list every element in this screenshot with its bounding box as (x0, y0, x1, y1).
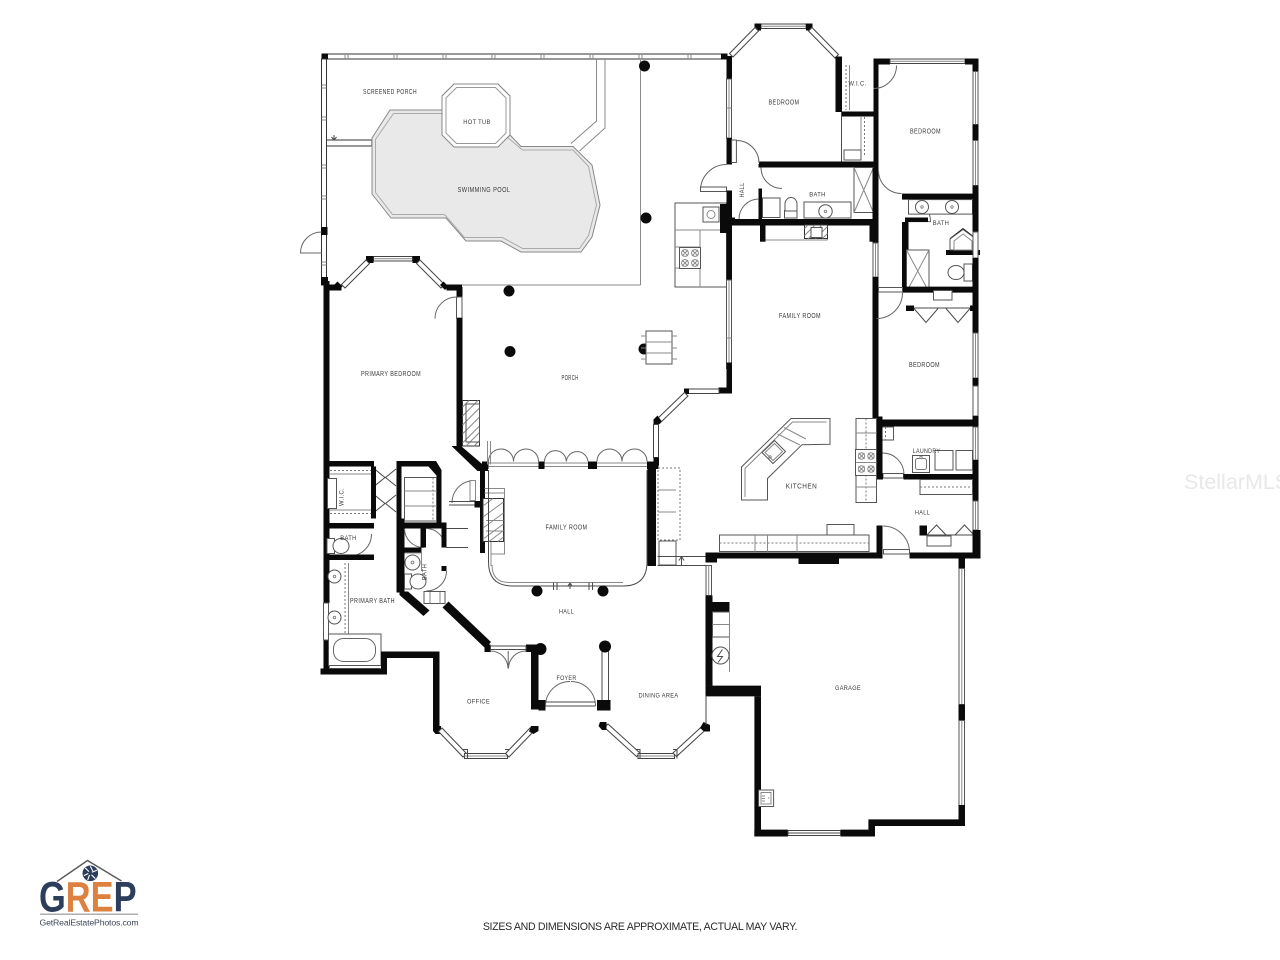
svg-text:BEDROOM: BEDROOM (769, 98, 800, 107)
svg-text:FAMILY ROOM: FAMILY ROOM (779, 311, 821, 320)
svg-text:LAUNDRY: LAUNDRY (913, 448, 941, 455)
svg-text:BATH: BATH (340, 535, 357, 542)
svg-text:HALL: HALL (739, 183, 746, 198)
svg-text:W.I.C.: W.I.C. (339, 488, 346, 506)
svg-text:SIZES AND DIMENSIONS ARE APPRO: SIZES AND DIMENSIONS ARE APPROXIMATE, AC… (483, 921, 797, 933)
svg-text:DINING AREA: DINING AREA (639, 693, 679, 700)
svg-text:PORCH: PORCH (562, 373, 579, 382)
svg-text:BATH: BATH (933, 220, 950, 227)
svg-text:OFFICE: OFFICE (467, 699, 490, 706)
svg-text:BATH: BATH (422, 564, 429, 581)
svg-text:HOT TUB: HOT TUB (463, 119, 491, 126)
svg-text:HALL: HALL (915, 510, 930, 517)
svg-text:BEDROOM: BEDROOM (910, 127, 941, 136)
svg-text:BATH: BATH (809, 192, 826, 199)
svg-text:PRIMARY BATH: PRIMARY BATH (350, 596, 395, 605)
svg-text:HALL: HALL (559, 609, 574, 616)
svg-text:SCREENED PORCH: SCREENED PORCH (363, 87, 417, 96)
svg-text:W.I.C.: W.I.C. (849, 81, 867, 88)
svg-text:KITCHEN: KITCHEN (786, 482, 818, 491)
svg-text:GARAGE: GARAGE (835, 685, 861, 692)
svg-text:GetRealEstatePhotos.com: GetRealEstatePhotos.com (40, 918, 139, 928)
svg-text:PRIMARY BEDROOM: PRIMARY BEDROOM (361, 369, 421, 378)
svg-text:SWIMMING POOL: SWIMMING POOL (458, 185, 511, 194)
svg-text:BEDROOM: BEDROOM (909, 360, 940, 369)
svg-text:StellarMLS: StellarMLS (1184, 470, 1280, 494)
svg-text:FAMILY ROOM: FAMILY ROOM (546, 523, 588, 532)
svg-text:FOYER: FOYER (557, 675, 577, 682)
